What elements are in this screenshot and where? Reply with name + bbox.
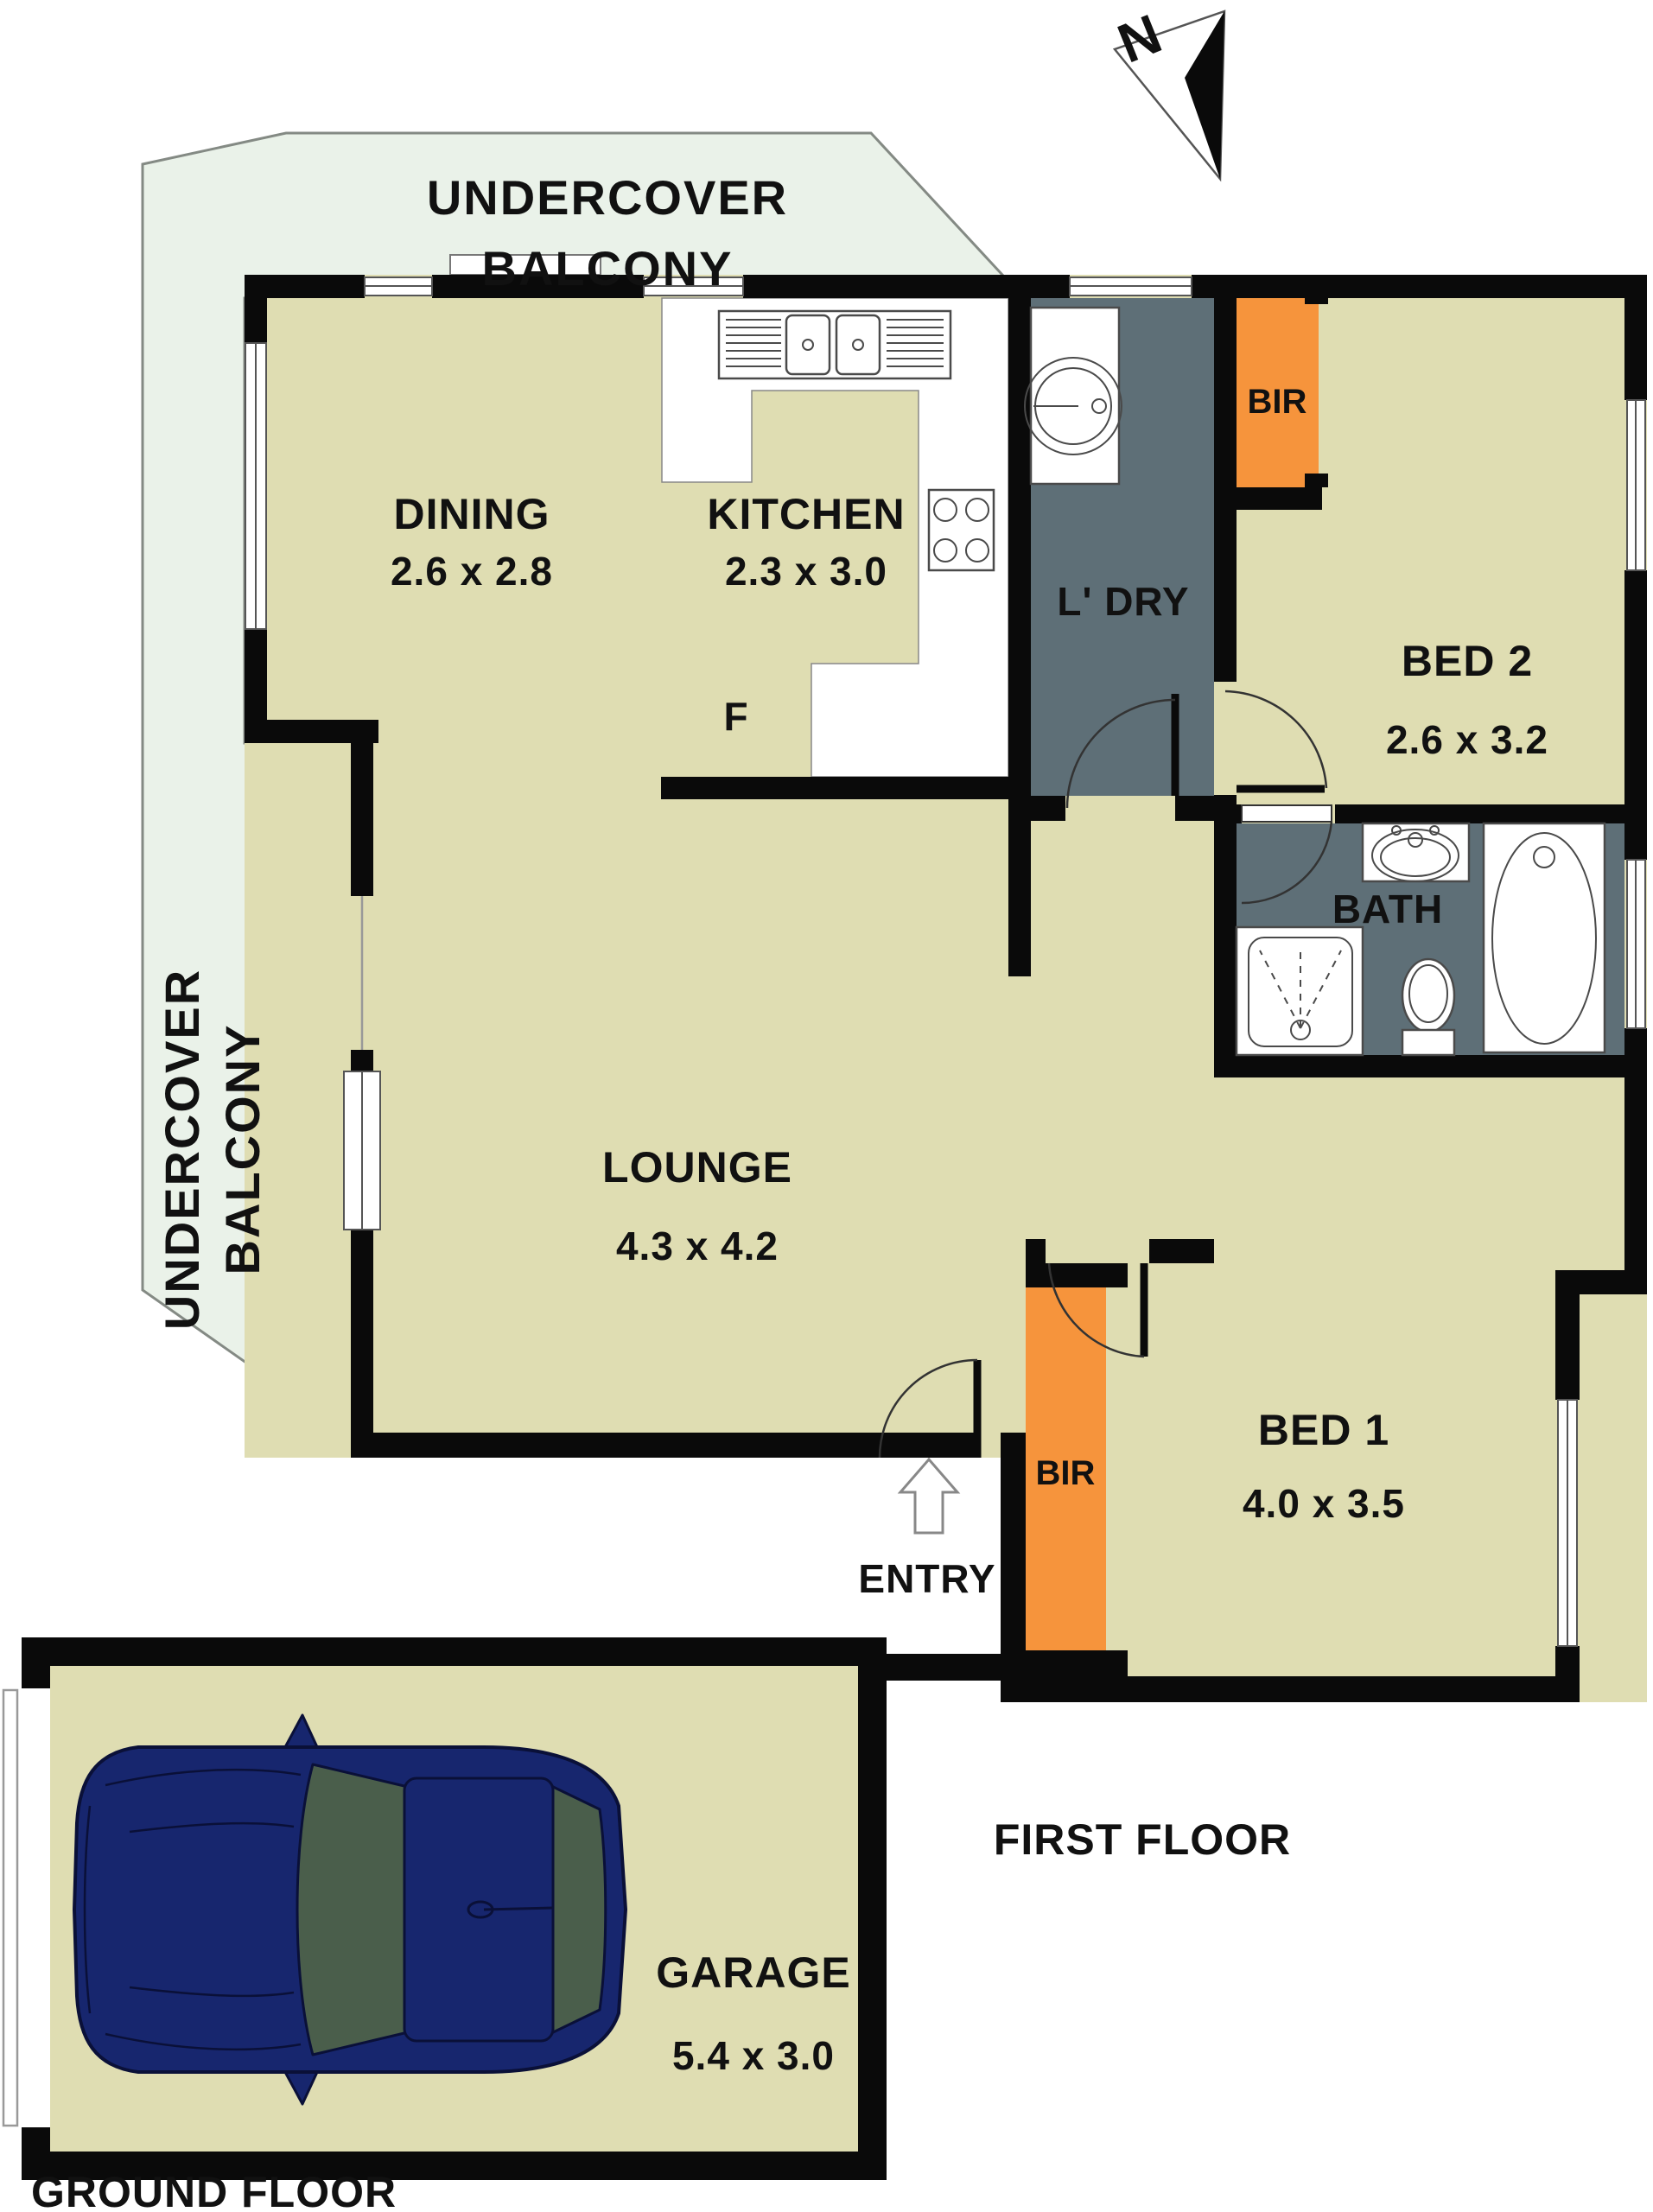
lounge-sliding-door [344, 1071, 380, 1230]
toilet [1402, 959, 1454, 1055]
wall-segment [1026, 1239, 1046, 1263]
wall-segment [1305, 474, 1328, 487]
garage-label: GARAGE [656, 1948, 850, 1997]
kitchen-sink [719, 311, 950, 378]
balcony-left-label-2: BALCONY [215, 1024, 270, 1275]
wall-segment [1214, 1055, 1647, 1077]
wall-segment [1008, 799, 1031, 976]
wall-segment [1555, 1294, 1580, 1400]
bath-vanity-sink [1363, 823, 1469, 881]
dining-label: DINING [394, 490, 550, 538]
wall-segment [661, 777, 1031, 799]
wall-segment [1624, 570, 1647, 860]
entry-label: ENTRY [858, 1556, 995, 1601]
first-floor-label: FIRST FLOOR [994, 1815, 1291, 1864]
wall-segment [1214, 795, 1237, 1077]
garage-dims: 5.4 x 3.0 [672, 2033, 835, 2078]
wall-segment [1008, 275, 1031, 799]
bed1-dims: 4.0 x 3.5 [1243, 1481, 1405, 1526]
wall-segment [1149, 1239, 1214, 1263]
bed2-wardrobe-label: BIR [1248, 383, 1307, 421]
garage-door-panel [3, 1690, 17, 2126]
wall-segment [1214, 804, 1242, 823]
bed1-label: BED 1 [1258, 1406, 1389, 1454]
fridge-label: F [723, 694, 748, 739]
bed1-east-window [1558, 1400, 1577, 1646]
bath-east-window [1627, 860, 1645, 1028]
wall-segment [1624, 275, 1647, 400]
wall-segment [245, 275, 267, 343]
car-windshield [297, 1764, 408, 2055]
bed1-wardrobe-label: BIR [1036, 1454, 1096, 1492]
shower [1237, 927, 1363, 1055]
wall-segment [351, 1050, 373, 1071]
wall-segment [1175, 796, 1214, 821]
kitchen-label: KITCHEN [707, 490, 905, 538]
wall-segment [351, 1230, 373, 1458]
laundry-top-window [1070, 277, 1192, 296]
car [74, 1715, 626, 2104]
floor-plan-page: N UNDERCOVER BALCONY UNDERCOVER BALCONY … [0, 0, 1653, 2212]
lounge-label: LOUNGE [602, 1143, 792, 1192]
car-antenna [484, 1908, 553, 1910]
wall-segment [1214, 487, 1322, 510]
wall-segment [1305, 290, 1328, 304]
wall-segment [1555, 1270, 1647, 1294]
wall-segment [1335, 804, 1647, 823]
kitchen-dims: 2.3 x 3.0 [725, 549, 887, 594]
laundry-label: L' DRY [1057, 579, 1189, 624]
floor-plan-drawing: N UNDERCOVER BALCONY UNDERCOVER BALCONY … [0, 0, 1653, 2212]
dining-top-window [365, 277, 432, 296]
bed2-east-window [1627, 400, 1645, 570]
wall-segment [245, 720, 378, 743]
wall-segment [1031, 796, 1065, 821]
garage [3, 1637, 887, 2180]
balcony-top-label-1: UNDERCOVER [427, 170, 788, 225]
wall-segment [351, 743, 373, 896]
ground-floor-label: GROUND FLOOR [31, 2168, 397, 2212]
wall-segment [1192, 275, 1647, 298]
car-rear-window [550, 1785, 606, 2034]
balcony-left-label-1: UNDERCOVER [155, 969, 209, 1330]
wall-segment [1026, 1650, 1128, 1676]
entry-arrow-icon [900, 1459, 957, 1533]
bed2-dims: 2.6 x 3.2 [1386, 717, 1548, 762]
dining-dims: 2.6 x 2.8 [391, 549, 553, 594]
lounge-dims: 4.3 x 4.2 [616, 1224, 779, 1268]
north-arrow-icon: N [1109, 3, 1224, 179]
wall-segment [1214, 275, 1237, 682]
balcony-top-label-2: BALCONY [482, 241, 734, 296]
bed2-label: BED 2 [1402, 637, 1533, 685]
cooktop [929, 490, 994, 570]
laundry-tub [1025, 308, 1122, 484]
dining-west-window [245, 343, 266, 629]
wall-segment [1001, 1433, 1026, 1684]
wall-segment [1001, 1676, 1580, 1702]
bath-label: BATH [1332, 887, 1443, 931]
wall-segment [1026, 1263, 1128, 1287]
garage-door-opening [22, 1688, 50, 2127]
bathtub [1484, 823, 1605, 1052]
